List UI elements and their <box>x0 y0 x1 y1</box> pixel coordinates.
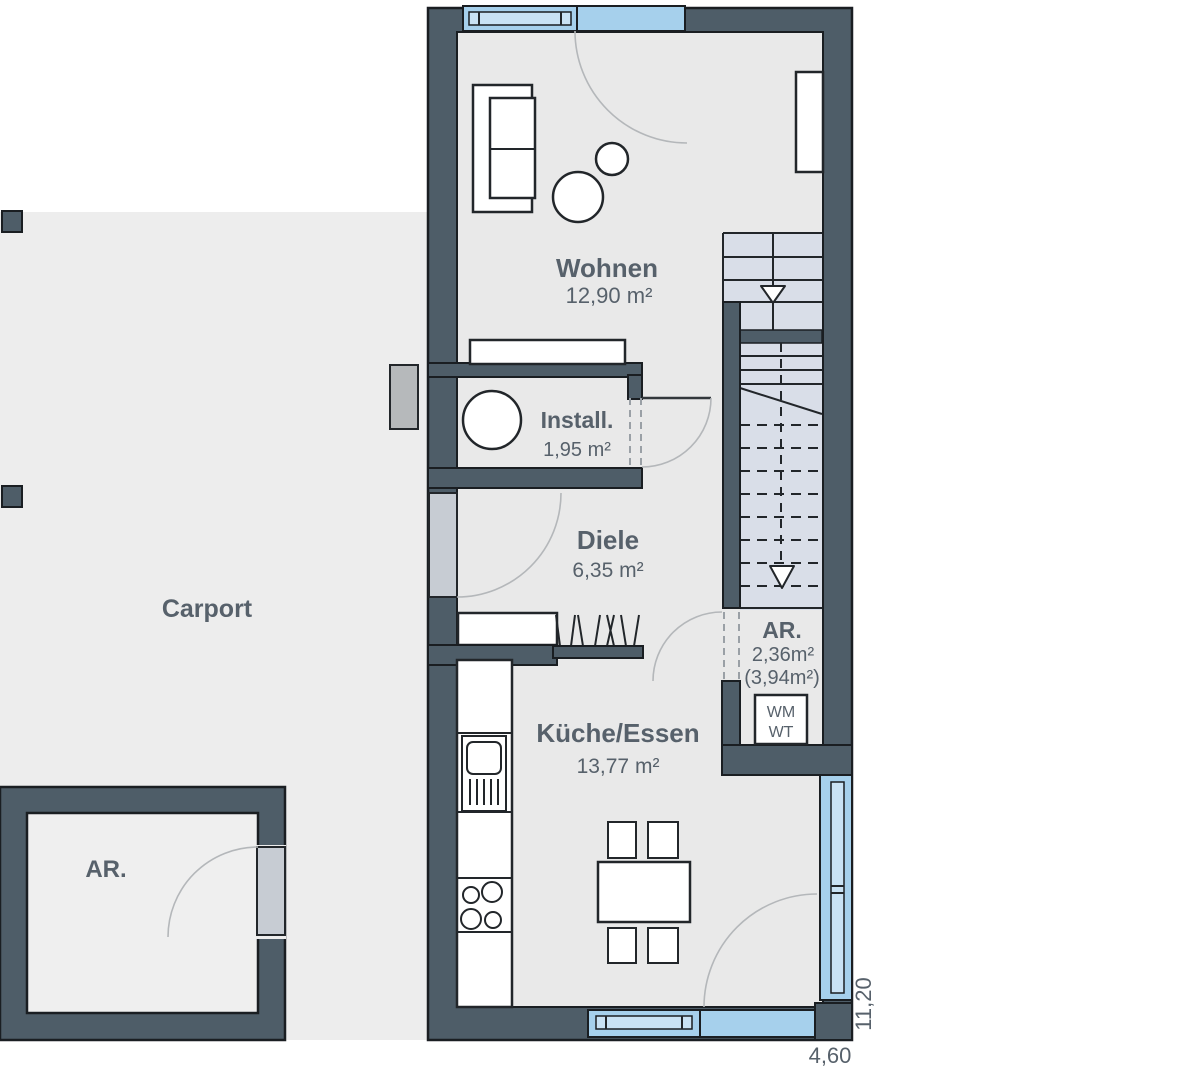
chair-icon <box>608 928 636 963</box>
window-frame-icon <box>469 12 571 25</box>
carport-storage-room <box>0 787 286 1040</box>
east-window <box>820 775 852 1000</box>
entrance-door-icon <box>577 6 685 31</box>
install-wall-bottom <box>428 468 642 488</box>
window-frame-icon <box>596 1016 692 1029</box>
storage-floor <box>27 813 258 1013</box>
sink-icon <box>462 736 506 811</box>
corner-wall <box>815 1003 852 1040</box>
chair-icon <box>648 928 678 963</box>
dimension-width: 4,60 <box>809 1043 852 1068</box>
stairs <box>723 233 822 610</box>
terrace-door-icon <box>700 1010 815 1037</box>
wardrobe-icon <box>458 613 557 645</box>
diele-door-leaf-icon <box>429 493 457 597</box>
room-label-wohnen: Wohnen <box>556 253 658 283</box>
room-area-total-ar: (3,94m²) <box>744 667 820 689</box>
floorplan-drawing: Wohnen 12,90 m² Install. 1,95 m² Diele 6… <box>0 0 1200 1070</box>
window-frame-icon <box>831 782 844 993</box>
pillar-icon <box>390 365 418 429</box>
room-label-carport-ar: AR. <box>85 856 126 883</box>
room-label-kueche: Küche/Essen <box>536 718 699 748</box>
cabinet-icon <box>796 72 823 172</box>
room-label-ar: AR. <box>762 617 802 643</box>
stair-wall <box>723 302 740 608</box>
stair-landing-edge <box>740 330 822 343</box>
sideboard-icon <box>470 340 625 364</box>
storage-door-leaf-icon <box>257 847 285 935</box>
boiler-icon <box>463 391 521 449</box>
chair-icon <box>608 822 636 858</box>
floorplan: Wohnen 12,90 m² Install. 1,95 m² Diele 6… <box>0 0 1200 1070</box>
carport-post-icon <box>2 486 22 507</box>
room-area-ar: 2,36m² <box>752 644 815 666</box>
ar-wall-bottom <box>722 745 852 775</box>
kitchen-counter-icon <box>457 660 512 1007</box>
room-label-install: Install. <box>541 407 614 433</box>
carport <box>0 211 430 1040</box>
install-wall-stub <box>628 375 642 399</box>
room-area-wohnen: 12,90 m² <box>566 283 653 308</box>
room-area-diele: 6,35 m² <box>572 559 643 582</box>
room-area-kueche: 13,77 m² <box>577 755 660 778</box>
room-area-install: 1,95 m² <box>543 439 611 461</box>
room-label-diele: Diele <box>577 525 639 555</box>
chair-icon <box>648 822 678 858</box>
side-table-icon <box>596 143 628 175</box>
dimension-depth: 11,20 <box>851 977 876 1030</box>
coffee-table-icon <box>553 172 603 222</box>
room-label-carport: Carport <box>162 595 253 623</box>
dining-table-icon <box>598 862 690 922</box>
carport-post-icon <box>2 211 22 232</box>
washing-machine-label: WM <box>767 704 795 721</box>
dryer-label: WT <box>769 724 794 741</box>
